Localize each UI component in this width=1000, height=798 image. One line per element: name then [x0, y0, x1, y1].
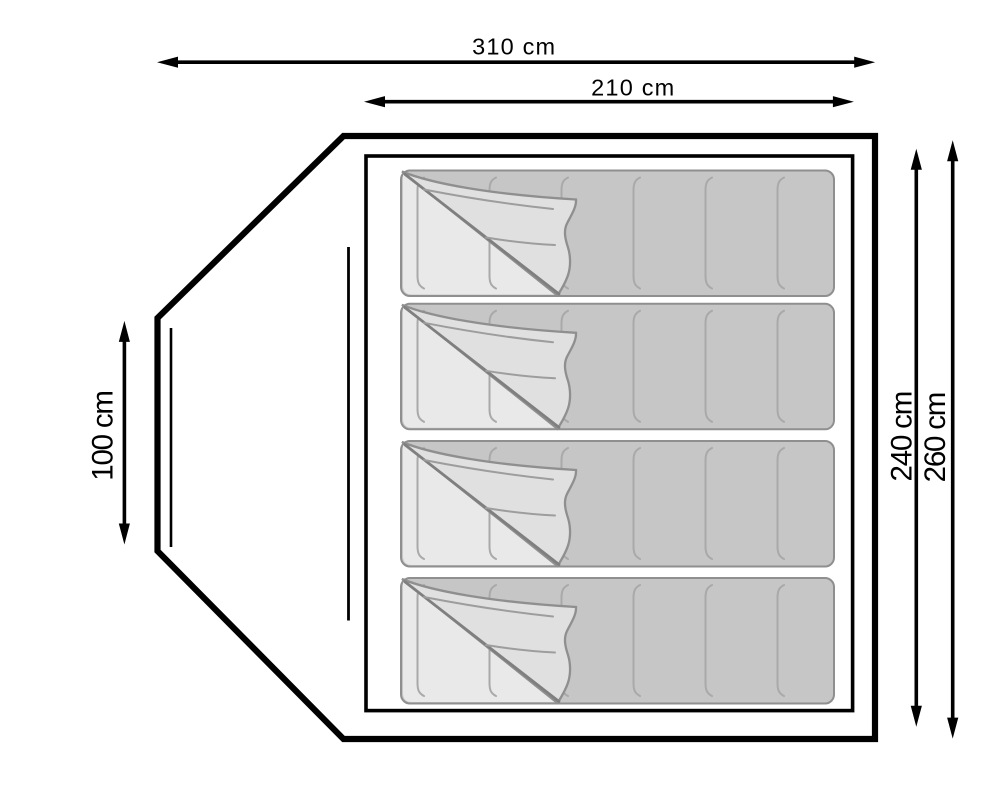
svg-text:100 cm: 100 cm	[86, 391, 119, 481]
svg-text:210 cm: 210 cm	[591, 74, 675, 100]
svg-text:310 cm: 310 cm	[472, 34, 556, 60]
svg-text:260 cm: 260 cm	[919, 393, 952, 483]
svg-text:240 cm: 240 cm	[886, 392, 919, 482]
